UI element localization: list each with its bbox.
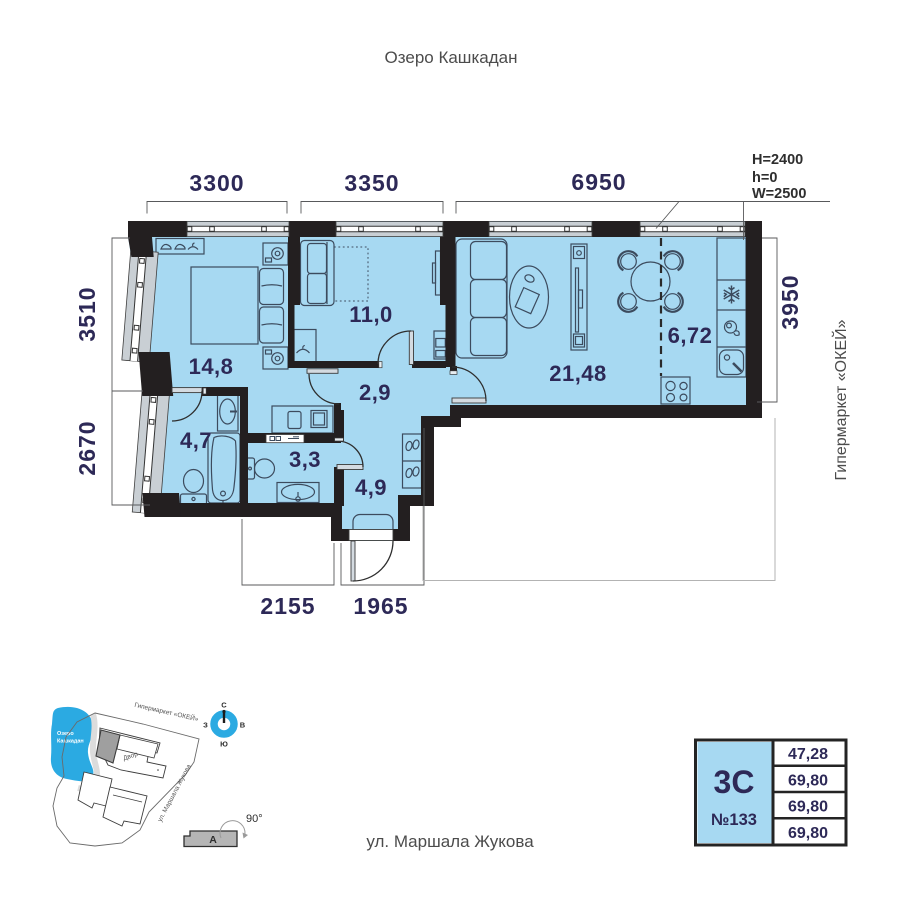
svg-text:6,72: 6,72 xyxy=(668,323,713,348)
svg-text:90°: 90° xyxy=(246,813,263,825)
svg-text:3350: 3350 xyxy=(344,170,399,196)
svg-text:3,3: 3,3 xyxy=(289,447,321,472)
svg-text:А: А xyxy=(209,834,217,846)
svg-text:2155: 2155 xyxy=(260,593,315,619)
svg-text:h=0: h=0 xyxy=(752,170,777,186)
svg-text:69,80: 69,80 xyxy=(788,773,828,790)
svg-text:47,28: 47,28 xyxy=(788,746,828,763)
svg-text:69,80: 69,80 xyxy=(788,825,828,842)
svg-text:2,9: 2,9 xyxy=(359,380,391,405)
svg-text:11,0: 11,0 xyxy=(349,302,393,327)
svg-text:В: В xyxy=(240,721,246,730)
svg-text:Ю: Ю xyxy=(220,740,228,749)
svg-text:Кашкадан: Кашкадан xyxy=(57,739,84,745)
svg-text:4,7: 4,7 xyxy=(180,428,212,453)
svg-text:Озеро: Озеро xyxy=(57,731,74,737)
svg-text:3510: 3510 xyxy=(74,286,100,341)
svg-text:W=2500: W=2500 xyxy=(752,186,806,202)
svg-text:2670: 2670 xyxy=(74,420,100,475)
svg-text:3300: 3300 xyxy=(189,170,244,196)
svg-text:3С: 3С xyxy=(714,764,755,800)
svg-text:3950: 3950 xyxy=(777,274,803,329)
svg-text:ул. Маршала Жукова: ул. Маршала Жукова xyxy=(366,832,534,851)
svg-text:С: С xyxy=(221,701,227,710)
svg-text:69,80: 69,80 xyxy=(788,799,828,816)
svg-text:H=2400: H=2400 xyxy=(752,152,803,168)
svg-text:6950: 6950 xyxy=(571,169,626,195)
svg-text:З: З xyxy=(203,721,208,730)
svg-text:Гипермаркет «ОКЕЙ»: Гипермаркет «ОКЕЙ» xyxy=(831,319,850,480)
svg-text:14,8: 14,8 xyxy=(189,354,234,379)
svg-text:№133: №133 xyxy=(711,811,757,829)
svg-text:Озеро Кашкадан: Озеро Кашкадан xyxy=(385,48,518,67)
svg-text:4,9: 4,9 xyxy=(355,475,387,500)
svg-text:21,48: 21,48 xyxy=(549,361,607,386)
svg-text:1965: 1965 xyxy=(353,593,408,619)
